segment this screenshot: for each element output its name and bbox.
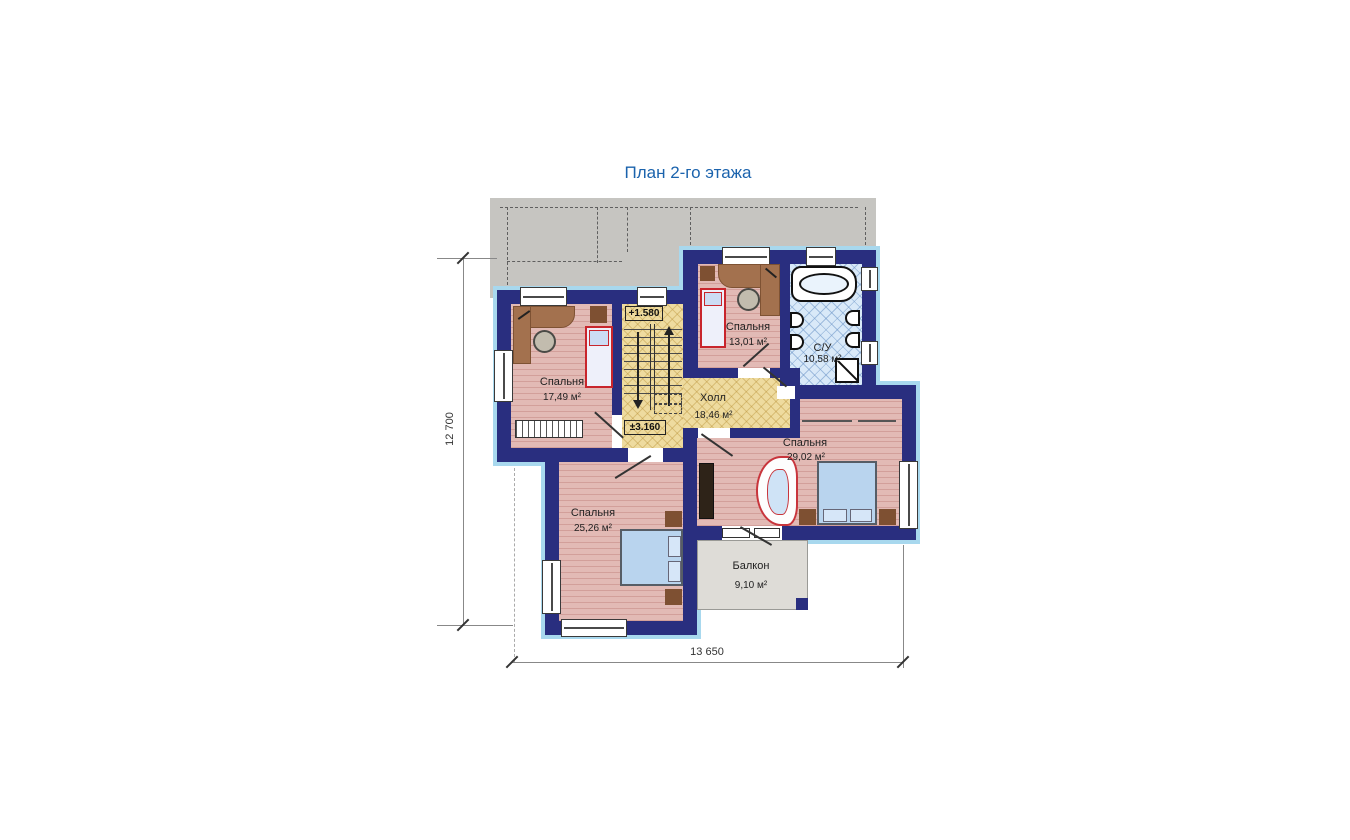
- room-area-hall: 18,46 м²: [686, 410, 741, 421]
- bed-pillow: [850, 509, 872, 522]
- dimension-extension: [903, 545, 904, 668]
- window: [542, 560, 561, 614]
- nightstand: [879, 509, 896, 525]
- window: [637, 287, 667, 306]
- dimension-extension: [437, 625, 513, 626]
- roof-dash-line: [507, 261, 622, 262]
- window: [806, 247, 836, 266]
- toilet: [845, 310, 860, 326]
- wall: [683, 250, 876, 264]
- wall: [559, 448, 683, 462]
- bed-pillow: [668, 536, 681, 557]
- room-label-bedroom-tm: Спальня: [713, 321, 783, 333]
- door-opening-bathroom: [777, 386, 795, 399]
- dimension-extension: [437, 258, 497, 259]
- window: [520, 287, 567, 306]
- roof-dash-line: [500, 207, 858, 208]
- chair: [737, 288, 760, 311]
- room-label-bedroom-tl: Спальня: [527, 376, 597, 388]
- stair-arrow-down: [637, 332, 639, 402]
- roof-dash-line: [597, 207, 598, 263]
- window: [494, 350, 513, 402]
- cabinet: [700, 266, 715, 281]
- room-area-bedroom-r: 29,02 м²: [775, 452, 837, 463]
- roof-dash-line: [507, 207, 508, 295]
- closet-rail: [802, 420, 852, 422]
- room-label-bedroom-bl: Спальня: [558, 507, 628, 519]
- dimension-text-horizontal: 13 650: [677, 646, 737, 658]
- bed-pillow: [668, 561, 681, 582]
- stair-arrow-up-head: [664, 326, 674, 335]
- bathtub: [791, 266, 857, 302]
- wardrobe: [699, 463, 714, 519]
- sofa-cushions: [767, 469, 789, 515]
- wall: [683, 526, 916, 540]
- nightstand: [799, 509, 816, 525]
- elevation-mark-landing: +1.580: [625, 306, 663, 321]
- bathtub-basin: [799, 273, 849, 295]
- wall: [612, 304, 622, 418]
- window: [561, 619, 627, 637]
- room-label-bedroom-r: Спальня: [770, 437, 840, 449]
- roof-dash-line: [690, 207, 691, 250]
- room-area-bedroom-tl: 17,49 м²: [527, 392, 597, 403]
- stair-arrow-down-head: [633, 400, 643, 409]
- dimension-text-vertical: 12 700: [444, 399, 456, 459]
- balcony-pillar: [796, 598, 808, 610]
- sofa: [756, 456, 798, 526]
- bed-pillow: [704, 292, 722, 306]
- nightstand: [665, 511, 682, 527]
- room-area-bathroom: 10,58 м²: [795, 354, 850, 365]
- room-area-bedroom-bl: 25,26 м²: [560, 523, 626, 534]
- bidet: [845, 332, 860, 348]
- elevation-mark-floor: ±3.160: [624, 420, 666, 435]
- chair: [533, 330, 556, 353]
- closet-rail: [858, 420, 896, 422]
- bed: [817, 461, 877, 525]
- bed: [620, 529, 683, 586]
- window: [861, 267, 878, 291]
- roof-dash-line: [865, 207, 866, 250]
- stair-dashed-step: [654, 404, 682, 414]
- balcony: [697, 540, 808, 610]
- room-label-balcony: Балкон: [718, 560, 784, 572]
- room-label-hall: Холл: [683, 392, 743, 404]
- room-area-balcony: 9,10 м²: [720, 580, 782, 591]
- wall: [683, 250, 698, 378]
- dimension-extension-dashed: [514, 468, 515, 662]
- room-area-bedroom-tm: 13,01 м²: [713, 337, 783, 348]
- floor-plan-page: План 2-го этажа: [0, 0, 1350, 840]
- dimension-line-horizontal: [512, 662, 904, 663]
- cabinet: [590, 306, 607, 323]
- window: [899, 461, 918, 529]
- bed-pillow: [823, 509, 847, 522]
- dimension-line-vertical: [463, 258, 464, 626]
- radiator: [515, 420, 583, 438]
- bed-pillow: [589, 330, 609, 346]
- stair-dashed-step: [654, 394, 682, 404]
- wall: [780, 385, 916, 399]
- room-label-bathroom: С/У: [800, 342, 845, 354]
- page-title: План 2-го этажа: [556, 163, 820, 183]
- window: [861, 341, 878, 365]
- nightstand: [665, 589, 682, 605]
- roof-dash-line: [627, 207, 628, 252]
- floor-bedroom-r: [800, 399, 902, 438]
